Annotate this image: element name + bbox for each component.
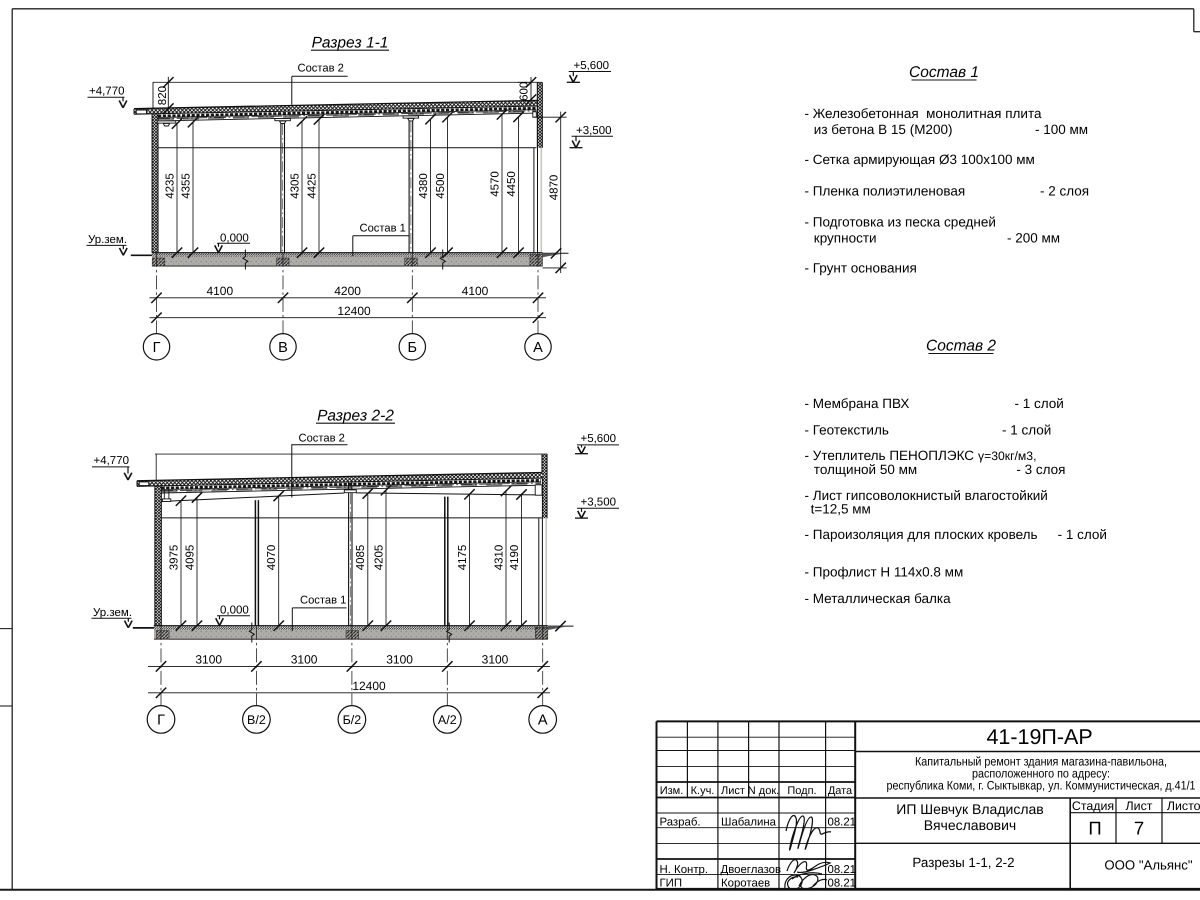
svg-text:Н. Контр.: Н. Контр. [660,864,709,876]
svg-text:А: А [538,713,548,729]
svg-text:+3,500: +3,500 [581,497,617,509]
svg-text:В/2: В/2 [247,713,266,727]
svg-text:+4,770: +4,770 [89,86,125,98]
svg-text:4355: 4355 [181,173,193,199]
svg-text:Шабалина: Шабалина [721,816,777,828]
svg-text:ГИП: ГИП [660,878,683,890]
svg-text:- Утеплитель ПЕНОПЛЭКС: - Утеплитель ПЕНОПЛЭКС [805,448,975,463]
svg-text:N док.: N док. [748,785,779,797]
svg-text:4100: 4100 [462,284,489,298]
svg-text:ООО "Альянс": ООО "Альянс" [1104,857,1192,872]
svg-text:+4,770: +4,770 [94,455,130,467]
svg-text:3100: 3100 [195,653,222,667]
svg-text:Дата: Дата [828,785,853,797]
svg-text:820: 820 [157,86,169,105]
svg-text:Подп.: Подп. [787,785,816,797]
svg-text:Состав 2: Состав 2 [298,63,344,75]
svg-text:+3,500: +3,500 [576,125,612,137]
svg-text:4205: 4205 [373,545,385,571]
svg-text:Г: Г [157,713,165,729]
svg-text:4175: 4175 [457,545,469,571]
svg-text:Листов: Листов [1167,799,1200,813]
svg-text:- Подготовка из песка средней: - Подготовка из песка средней [805,215,996,230]
svg-text:А/2: А/2 [438,713,457,727]
svg-text:4100: 4100 [206,284,233,298]
svg-text:Б/2: Б/2 [343,713,362,727]
svg-text:4870: 4870 [548,175,560,201]
svg-text:4190: 4190 [509,545,521,571]
svg-text:3100: 3100 [386,653,413,667]
svg-text:Г: Г [153,340,161,356]
svg-text:Состав 1: Состав 1 [360,223,406,235]
svg-text:- Сетка армирующая Ø3 100х100: - Сетка армирующая Ø3 100х100 мм [805,152,1035,167]
svg-text:Разрез 2-2: Разрез 2-2 [317,408,394,425]
svg-text:Разрезы 1-1, 2-2: Разрезы 1-1, 2-2 [912,855,1014,870]
svg-text:Разрез 1-1: Разрез 1-1 [312,35,389,52]
svg-text:крупности: крупности [814,231,877,246]
svg-text:республика Коми, г. Сыктывкар,: республика Коми, г. Сыктывкар, ул. Комму… [887,778,1196,792]
svg-text:из бетона В 15 (М200): из бетона В 15 (М200) [814,122,953,137]
svg-text:- Грунт основания: - Грунт основания [805,261,917,276]
svg-text:- 2 слоя: - 2 слоя [1040,184,1089,199]
svg-text:4380: 4380 [418,173,430,199]
svg-text:Состав 1: Состав 1 [300,595,346,607]
svg-text:0,000: 0,000 [220,605,249,617]
svg-text:- Железобетонная монолитная п: - Железобетонная монолитная плита [805,106,1042,121]
svg-text:3975: 3975 [168,545,180,571]
svg-text:4450: 4450 [506,171,518,197]
svg-text:4085: 4085 [355,545,367,571]
svg-text:Вячеславович: Вячеславович [924,817,1016,833]
svg-text:4235: 4235 [164,173,176,199]
svg-text:- Металлическая балка: - Металлическая балка [805,591,952,606]
svg-text:толщиной 50 мм: толщиной 50 мм [814,462,917,477]
svg-text:+5,600: +5,600 [574,60,610,72]
svg-text:- 100 мм: - 100 мм [1035,122,1088,137]
svg-text:Состав 1: Состав 1 [909,64,979,81]
svg-text:Ур.зем.: Ур.зем. [88,234,127,246]
svg-text:Лист: Лист [721,785,745,797]
svg-text:- 1 слой: - 1 слой [1002,423,1051,438]
svg-text:Б: Б [408,340,418,356]
svg-text:41-19П-АР: 41-19П-АР [986,725,1092,749]
svg-text:4500: 4500 [435,173,447,199]
svg-text:Изм.: Изм. [660,785,684,797]
svg-text:7: 7 [1134,818,1144,839]
svg-text:Разраб.: Разраб. [660,816,701,828]
svg-text:ИП Шевчук Владислав: ИП Шевчук Владислав [896,801,1043,817]
svg-text:4570: 4570 [489,171,501,197]
svg-text:12400: 12400 [352,679,386,693]
svg-text:Лист: Лист [1126,799,1153,813]
svg-text:Двоеглазов: Двоеглазов [721,864,782,876]
svg-text:08.21: 08.21 [828,816,857,828]
svg-text:- 3 слоя: - 3 слоя [1016,462,1065,477]
svg-text:4425: 4425 [306,173,318,199]
svg-text:4095: 4095 [184,545,196,571]
svg-text:08.21: 08.21 [828,878,857,890]
svg-text:- 1 слой: - 1 слой [1058,527,1107,542]
svg-text:- 200 мм: - 200 мм [1007,231,1060,246]
svg-text:3100: 3100 [291,653,318,667]
svg-text:Ур.зем.: Ур.зем. [93,607,132,619]
svg-text:- Мембрана ПВХ: - Мембрана ПВХ [805,396,910,411]
svg-text:0,000: 0,000 [220,232,249,244]
svg-text:К.уч.: К.уч. [691,785,715,797]
svg-text:3100: 3100 [482,653,509,667]
svg-text:- Геотекстиль: - Геотекстиль [805,423,889,438]
svg-text:- Пароизоляция для плоских кро: - Пароизоляция для плоских кровель [805,527,1038,542]
svg-text:4305: 4305 [289,173,301,199]
svg-text:Стадия: Стадия [1072,799,1114,813]
svg-text:Состав 2: Состав 2 [926,338,996,355]
svg-text:Коротаев: Коротаев [721,878,770,890]
svg-text:П: П [1088,818,1101,839]
svg-text:В: В [278,340,288,356]
svg-text:А: А [533,340,543,356]
svg-text:600: 600 [518,82,530,101]
svg-text:- 1 слой: - 1 слой [1015,396,1064,411]
svg-text:γ=30кг/м3,: γ=30кг/м3, [978,449,1036,463]
svg-text:4070: 4070 [266,545,278,571]
svg-text:4200: 4200 [334,284,361,298]
svg-text:t=12,5 мм: t=12,5 мм [811,502,871,517]
svg-text:- Профлист Н 114х0.8 мм: - Профлист Н 114х0.8 мм [805,565,964,580]
svg-text:4310: 4310 [493,545,505,571]
svg-text:Состав 2: Состав 2 [299,433,345,445]
svg-text:12400: 12400 [337,304,371,318]
svg-text:+5,600: +5,600 [581,433,617,445]
svg-text:08.21: 08.21 [828,864,857,876]
svg-text:- Пленка полиэтиленовая: - Пленка полиэтиленовая [805,184,966,199]
